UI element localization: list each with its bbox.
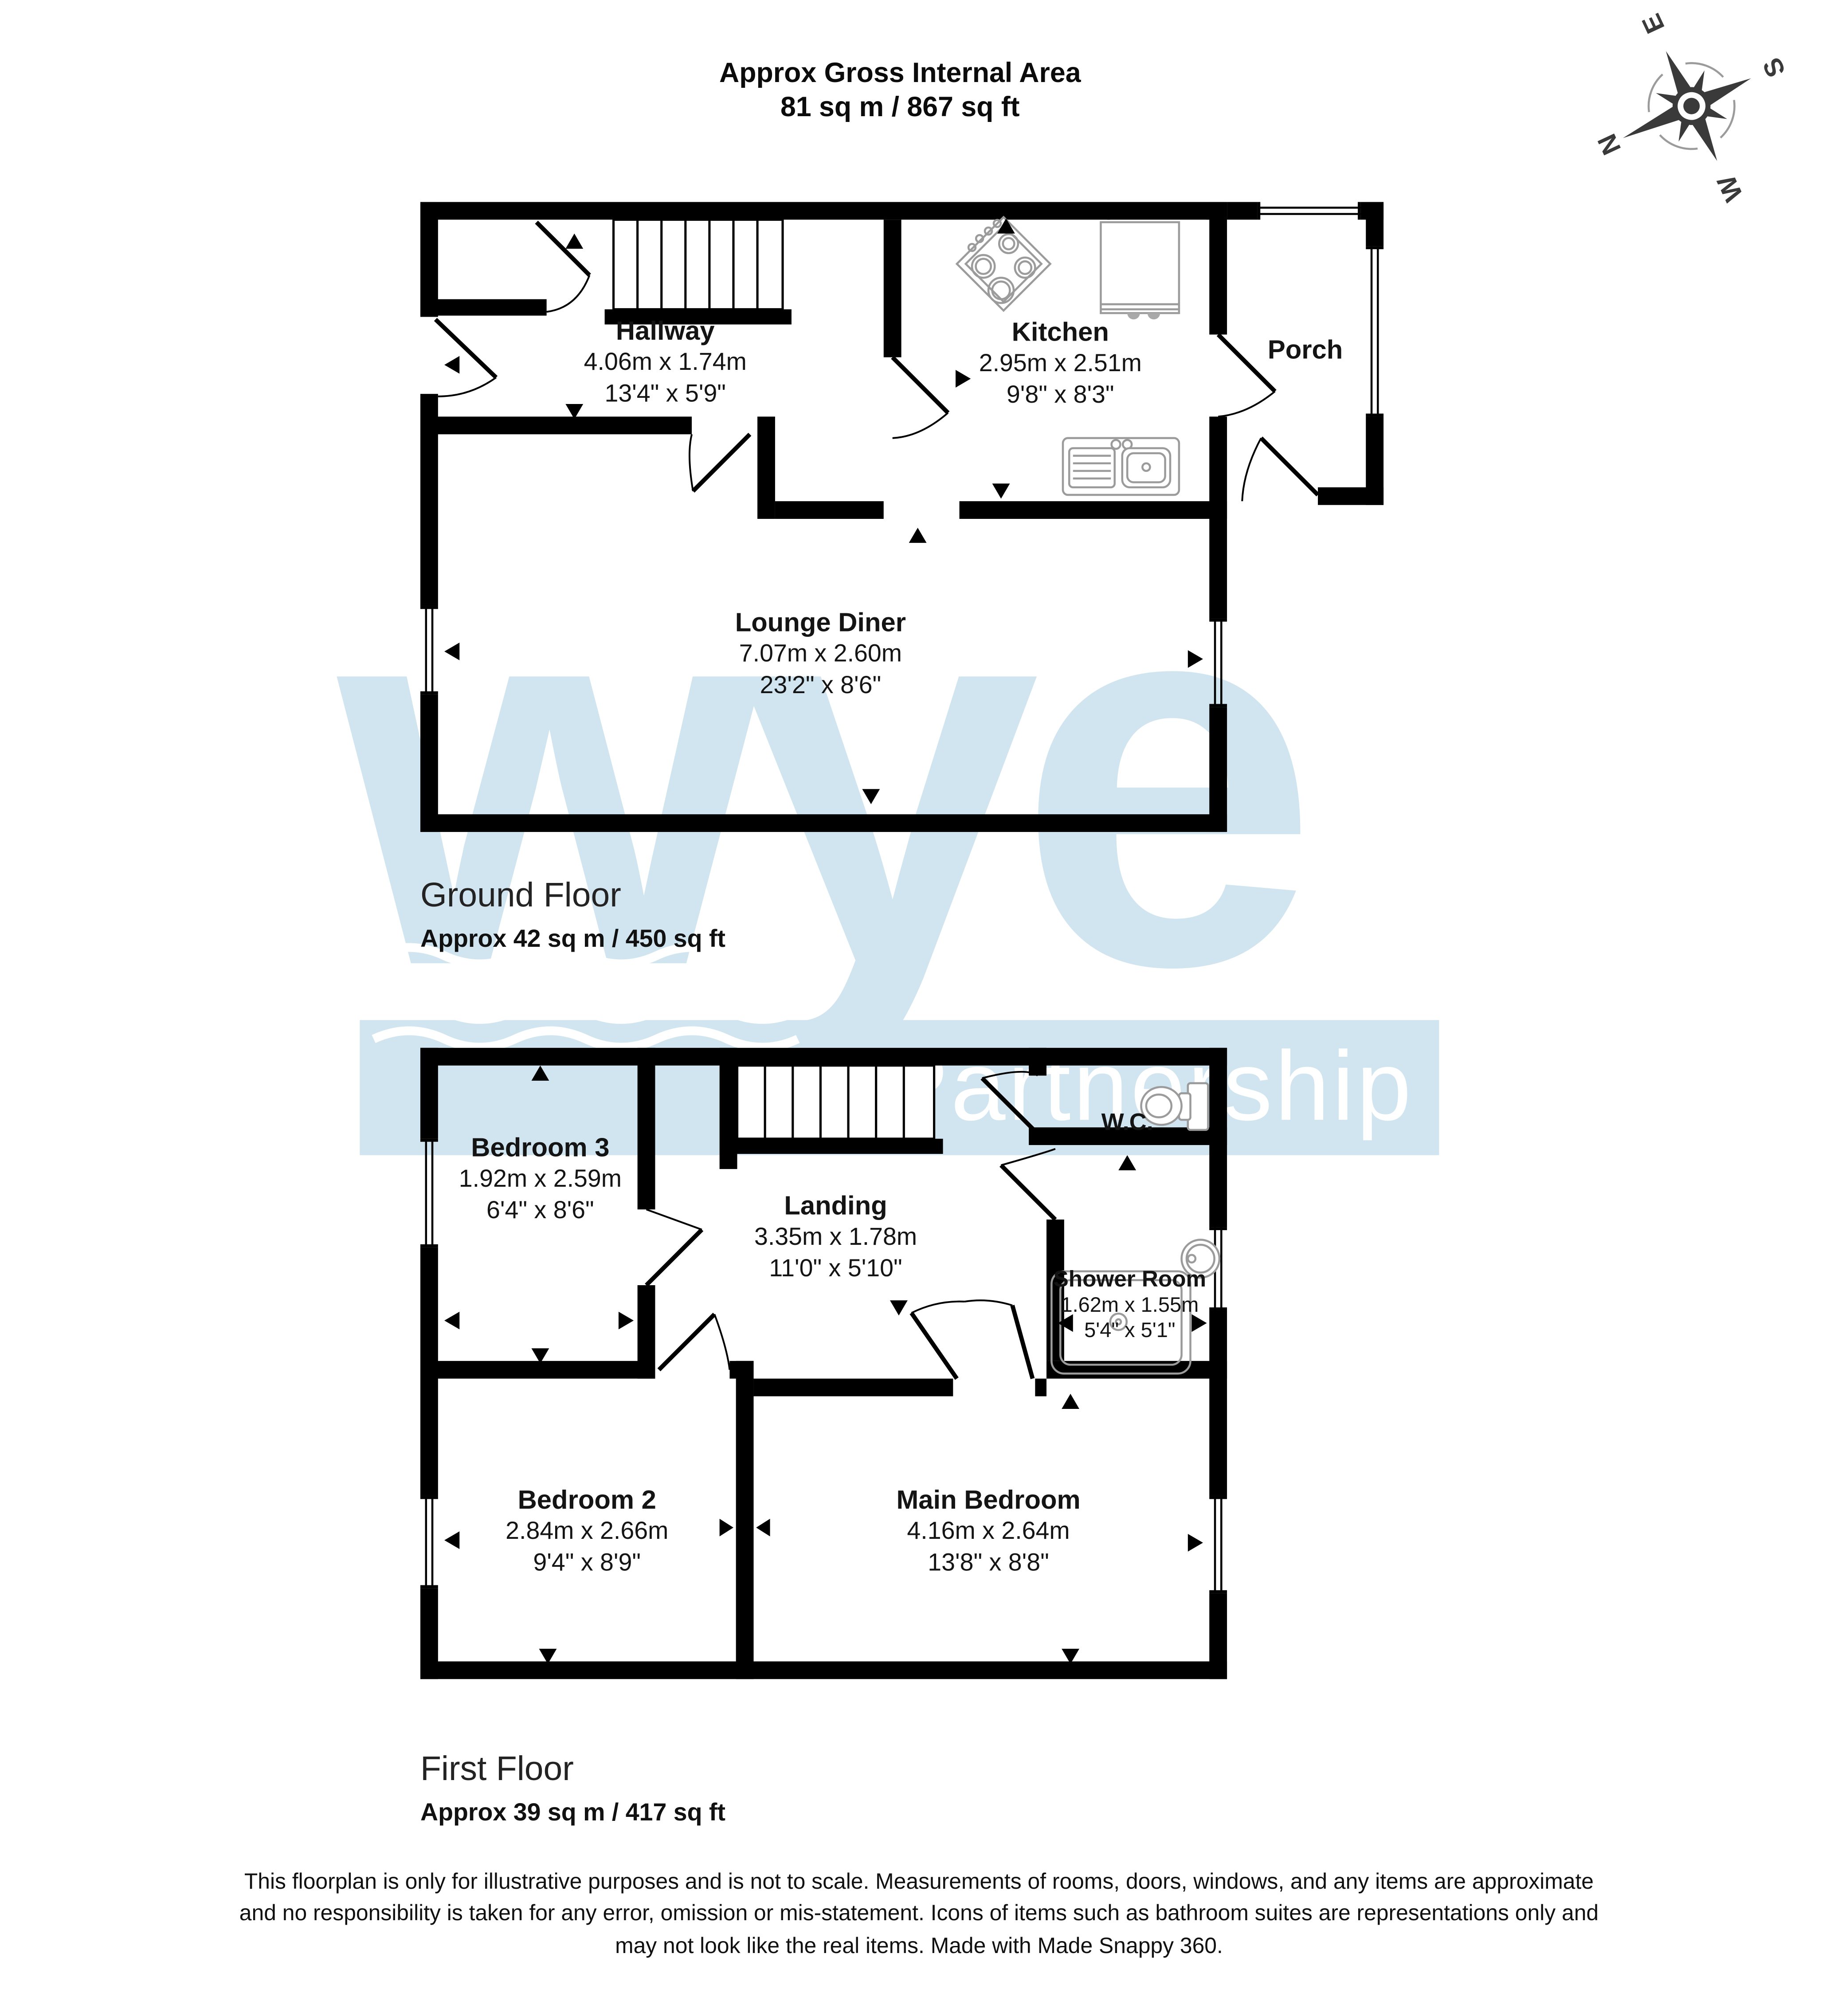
room-imperial: 9'8" x 8'3" — [909, 380, 1212, 412]
room-name: Bedroom 2 — [435, 1485, 738, 1516]
staircase-icon-first-floor — [729, 1066, 943, 1154]
floor-area: Approx 39 sq m / 417 sq ft — [420, 1799, 725, 1828]
room-name: Porch — [1230, 334, 1381, 366]
room-label-hallway: Hallway 4.06m x 1.74m 13'4" x 5'9" — [501, 316, 829, 411]
room-imperial: 9'4" x 8'9" — [435, 1548, 738, 1579]
room-name: Lounge Diner — [656, 607, 984, 639]
room-name: Landing — [684, 1191, 987, 1222]
ground-floor-walls — [420, 202, 1383, 832]
staircase-icon — [605, 220, 792, 324]
ground-floor-plan — [420, 202, 1383, 832]
room-metric: 1.62m x 1.55m — [1003, 1293, 1256, 1318]
room-imperial: 13'4" x 5'9" — [501, 379, 829, 410]
room-metric: 2.84m x 2.66m — [435, 1516, 738, 1548]
floor-name: First Floor — [420, 1750, 725, 1789]
floor-area: Approx 42 sq m / 450 sq ft — [420, 926, 725, 954]
compass-rose-icon: N E S W — [1554, 0, 1831, 244]
room-name: Kitchen — [909, 317, 1212, 349]
disclaimer-line2: and no responsibility is taken for any e… — [200, 1898, 1638, 1930]
room-label-lounge-diner: Lounge Diner 7.07m x 2.60m 23'2" x 8'6" — [656, 607, 984, 702]
room-metric: 7.07m x 2.60m — [656, 639, 984, 670]
compass-west-label: W — [1711, 171, 1749, 206]
room-metric: 2.95m x 2.51m — [909, 349, 1212, 380]
room-name: Shower Room — [1003, 1266, 1256, 1293]
title-line1: Approx Gross Internal Area — [647, 55, 1152, 90]
room-imperial: 13'8" x 8'8" — [837, 1548, 1140, 1579]
watermark-waves — [374, 948, 798, 1047]
counter-unit-icon — [1101, 222, 1179, 319]
room-label-shower-room: Shower Room 1.62m x 1.55m 5'4" x 5'1" — [1003, 1266, 1256, 1343]
room-name: Main Bedroom — [837, 1485, 1140, 1516]
floor-name: Ground Floor — [420, 876, 725, 915]
room-name: W.C. — [1067, 1107, 1188, 1139]
disclaimer-text: This floorplan is only for illustrative … — [200, 1866, 1638, 1962]
ground-floor-caption: Ground Floor Approx 42 sq m / 450 sq ft — [420, 876, 725, 955]
room-name: Bedroom 3 — [389, 1133, 692, 1164]
room-label-porch: Porch — [1230, 334, 1381, 366]
room-imperial: 5'4" x 5'1" — [1003, 1318, 1256, 1343]
room-metric: 4.06m x 1.74m — [501, 347, 829, 379]
room-imperial: 11'0" x 5'10" — [684, 1254, 987, 1285]
floorplan-drawing: N E S W — [0, 0, 1838, 2016]
room-imperial: 23'2" x 8'6" — [656, 671, 984, 702]
room-label-main-bedroom: Main Bedroom 4.16m x 2.64m 13'8" x 8'8" — [837, 1485, 1140, 1580]
first-floor-caption: First Floor Approx 39 sq m / 417 sq ft — [420, 1750, 725, 1828]
disclaimer-line3: may not look like the real items. Made w… — [200, 1930, 1638, 1962]
title-line2: 81 sq m / 867 sq ft — [647, 90, 1152, 124]
room-label-bedroom-3: Bedroom 3 1.92m x 2.59m 6'4" x 8'6" — [389, 1133, 692, 1228]
compass-north-label: N — [1591, 129, 1626, 159]
compass-east-label: E — [1636, 9, 1670, 38]
room-name: Hallway — [501, 316, 829, 347]
room-label-kitchen: Kitchen 2.95m x 2.51m 9'8" x 8'3" — [909, 317, 1212, 412]
room-label-bedroom-2: Bedroom 2 2.84m x 2.66m 9'4" x 8'9" — [435, 1485, 738, 1580]
floorplan-page: wye Partnership — [0, 0, 1838, 2016]
gross-internal-area-title: Approx Gross Internal Area 81 sq m / 867… — [647, 55, 1152, 124]
room-label-landing: Landing 3.35m x 1.78m 11'0" x 5'10" — [684, 1191, 987, 1286]
room-metric: 1.92m x 2.59m — [389, 1164, 692, 1196]
kitchen-sink-icon — [1063, 438, 1179, 495]
room-metric: 4.16m x 2.64m — [837, 1516, 1140, 1548]
room-imperial: 6'4" x 8'6" — [389, 1196, 692, 1227]
room-label-wc: W.C. — [1067, 1107, 1188, 1139]
disclaimer-line1: This floorplan is only for illustrative … — [200, 1866, 1638, 1898]
compass-south-label: S — [1757, 53, 1791, 82]
room-metric: 3.35m x 1.78m — [684, 1222, 987, 1254]
